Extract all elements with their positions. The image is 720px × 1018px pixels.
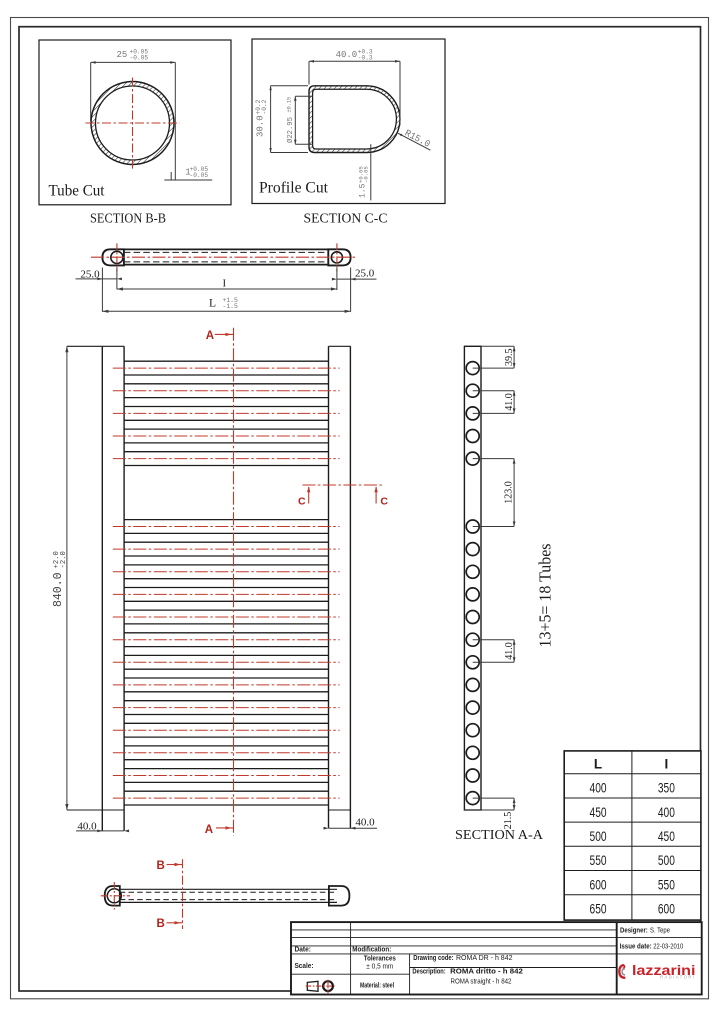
svg-text:Scale:: Scale: (295, 963, 314, 970)
svg-text:-2.0: -2.0 (60, 551, 68, 568)
svg-text:Issue date:: Issue date: (620, 944, 652, 951)
svg-text:500: 500 (590, 828, 607, 844)
svg-text:Profile Cut: Profile Cut (259, 179, 329, 196)
svg-text:450: 450 (590, 804, 607, 820)
svg-text:L: L (209, 298, 216, 310)
svg-text:S. Tepe: S. Tepe (650, 928, 670, 935)
svg-text:13+5= 18 Tubes: 13+5= 18 Tubes (536, 544, 555, 648)
svg-text:840.0: 840.0 (52, 572, 65, 607)
svg-text:40.0: 40.0 (336, 50, 358, 60)
svg-text:Date:: Date: (295, 946, 312, 953)
svg-text:1.5: 1.5 (359, 183, 368, 198)
svg-text:Description:: Description: (412, 968, 445, 975)
svg-text:Designer:: Designer: (620, 928, 648, 935)
svg-text:-0.05: -0.05 (190, 172, 209, 179)
svg-text:650: 650 (590, 901, 607, 917)
svg-text:± 0,5 mm: ± 0,5 mm (366, 964, 393, 971)
svg-text:Material: steel: Material: steel (360, 982, 394, 989)
svg-text:Modification:: Modification: (352, 946, 391, 953)
svg-text:Tolerances: Tolerances (364, 956, 396, 963)
svg-text:550: 550 (590, 852, 607, 868)
svg-text:L: L (594, 757, 602, 772)
svg-text:41.0: 41.0 (504, 642, 515, 660)
svg-text:A: A (205, 824, 213, 836)
svg-text:22-03-2010: 22-03-2010 (653, 944, 683, 951)
svg-text:-0.3: -0.3 (358, 55, 373, 62)
svg-text:C: C (380, 495, 388, 507)
svg-text:30.0: 30.0 (256, 115, 266, 137)
svg-text:-0.05: -0.05 (130, 55, 149, 62)
svg-text:123.0: 123.0 (504, 481, 515, 504)
svg-text:A: A (206, 330, 214, 342)
svg-text:600: 600 (590, 876, 607, 892)
svg-text:ROMA straight - h 842: ROMA straight - h 842 (451, 978, 512, 985)
svg-text:SECTION B-B: SECTION B-B (90, 210, 166, 225)
svg-text:SECTION A-A: SECTION A-A (455, 827, 543, 842)
svg-text:ROMA dritto - h 842: ROMA dritto - h 842 (450, 968, 523, 975)
svg-text:450: 450 (658, 828, 675, 844)
svg-text:±0.15: ±0.15 (287, 97, 293, 113)
svg-text:25: 25 (117, 50, 128, 60)
svg-text:SECTION C-C: SECTION C-C (304, 210, 388, 225)
svg-text:40.0: 40.0 (355, 817, 375, 829)
svg-text:I: I (222, 277, 226, 289)
svg-text:-0.2: -0.2 (261, 99, 268, 114)
svg-text:Ø22.95: Ø22.95 (286, 117, 295, 143)
svg-text:25.0: 25.0 (355, 267, 375, 279)
svg-text:B: B (157, 918, 165, 930)
svg-text:41.0: 41.0 (504, 393, 515, 411)
svg-text:Tube Cut: Tube Cut (49, 183, 106, 200)
svg-text:500: 500 (658, 852, 675, 868)
svg-text:39.5: 39.5 (504, 348, 515, 366)
svg-text:RADIATORI: RADIATORI (660, 975, 695, 980)
svg-text:400: 400 (658, 804, 675, 820)
svg-text:C: C (298, 495, 306, 507)
svg-text:ROMA DR - h 842: ROMA DR - h 842 (456, 955, 513, 962)
svg-text:-1.5: -1.5 (223, 303, 239, 310)
svg-text:400: 400 (590, 780, 607, 796)
svg-text:Drawing code:: Drawing code: (413, 955, 453, 962)
svg-text:600: 600 (658, 901, 675, 917)
svg-text:I: I (665, 757, 669, 772)
svg-text:B: B (157, 860, 165, 872)
svg-text:-0.05: -0.05 (363, 166, 370, 183)
svg-text:350: 350 (658, 780, 675, 796)
svg-text:550: 550 (658, 876, 675, 892)
